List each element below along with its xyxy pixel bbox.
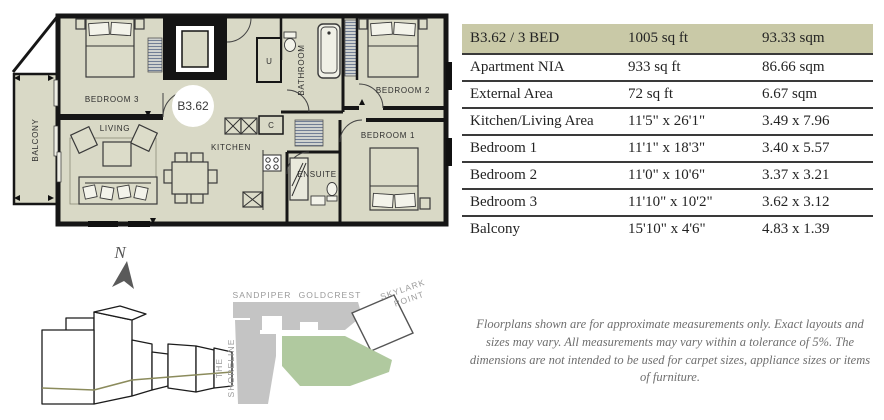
north-arrow-icon	[112, 261, 134, 289]
table-header-row: B3.62 / 3 BED 1005 sq ft 93.33 sqm	[462, 24, 873, 55]
balcony-label: BALCONY	[31, 118, 40, 161]
unit-number: B3.62	[177, 99, 209, 113]
bedroom1-label: BEDROOM 1	[361, 131, 415, 140]
unit-area-metric: 93.33 sqm	[762, 30, 873, 47]
table-row: Balcony 15'10" x 4'6" 4.83 x 1.39	[462, 217, 873, 242]
apartment-floorplan: BEDROOM 3 LIVING KITCHEN BEDROOM 2 BEDRO…	[13, 16, 452, 227]
goldcrest-label: GOLDCREST	[299, 290, 362, 300]
wardrobe-hall	[295, 120, 323, 146]
table-row: Apartment NIA 933 sq ft 86.66 sqm	[462, 55, 873, 82]
cupboard-label: C	[268, 121, 274, 130]
bedroom2-furniture	[359, 19, 427, 77]
unit-title: B3.62 / 3 BED	[462, 30, 628, 47]
table-row: Bedroom 3 11'10" x 10'2" 3.62 x 3.12	[462, 190, 873, 217]
wardrobe-bedroom3	[148, 38, 162, 72]
building-elevation	[42, 306, 232, 404]
disclaimer-text: Floorplans shown are for approximate mea…	[468, 316, 872, 387]
compass: N	[112, 243, 134, 289]
floorplan-page: BEDROOM 3 LIVING KITCHEN BEDROOM 2 BEDRO…	[0, 0, 884, 420]
exterior-diagonal-wall	[13, 17, 57, 72]
sandpiper-label: SANDPIPER	[232, 290, 291, 300]
north-label: N	[113, 243, 127, 262]
bedroom3-label: BEDROOM 3	[85, 95, 139, 104]
table-row: Bedroom 2 11'0" x 10'6" 3.37 x 3.21	[462, 163, 873, 190]
unit-area-imperial: 1005 sq ft	[628, 30, 762, 47]
bedroom3-furniture	[76, 19, 144, 77]
utility-label: U	[266, 57, 272, 66]
wardrobe-bedroom2	[345, 20, 357, 76]
kitchen-label: KITCHEN	[211, 143, 251, 152]
shoreline-label-shoreline: SHORELINE	[226, 338, 236, 397]
site-plan: SANDPIPER GOLDCREST SKYLARK POINT THE SH…	[214, 277, 430, 404]
table-row: Bedroom 1 11'1" x 18'3" 3.40 x 5.57	[462, 136, 873, 163]
bathroom-label: BATHROOM	[297, 44, 306, 95]
dimensions-table: B3.62 / 3 BED 1005 sq ft 93.33 sqm Apart…	[462, 24, 873, 242]
shoreline-label-the: THE	[214, 358, 224, 378]
bedroom2-label: BEDROOM 2	[376, 86, 430, 95]
shoreline-block	[235, 320, 276, 404]
table-row: External Area 72 sq ft 6.67 sqm	[462, 82, 873, 109]
table-row: Kitchen/Living Area 11'5" x 26'1" 3.49 x…	[462, 109, 873, 136]
ensuite-label: ENSUITE	[297, 170, 337, 179]
living-label: LIVING	[100, 124, 130, 133]
